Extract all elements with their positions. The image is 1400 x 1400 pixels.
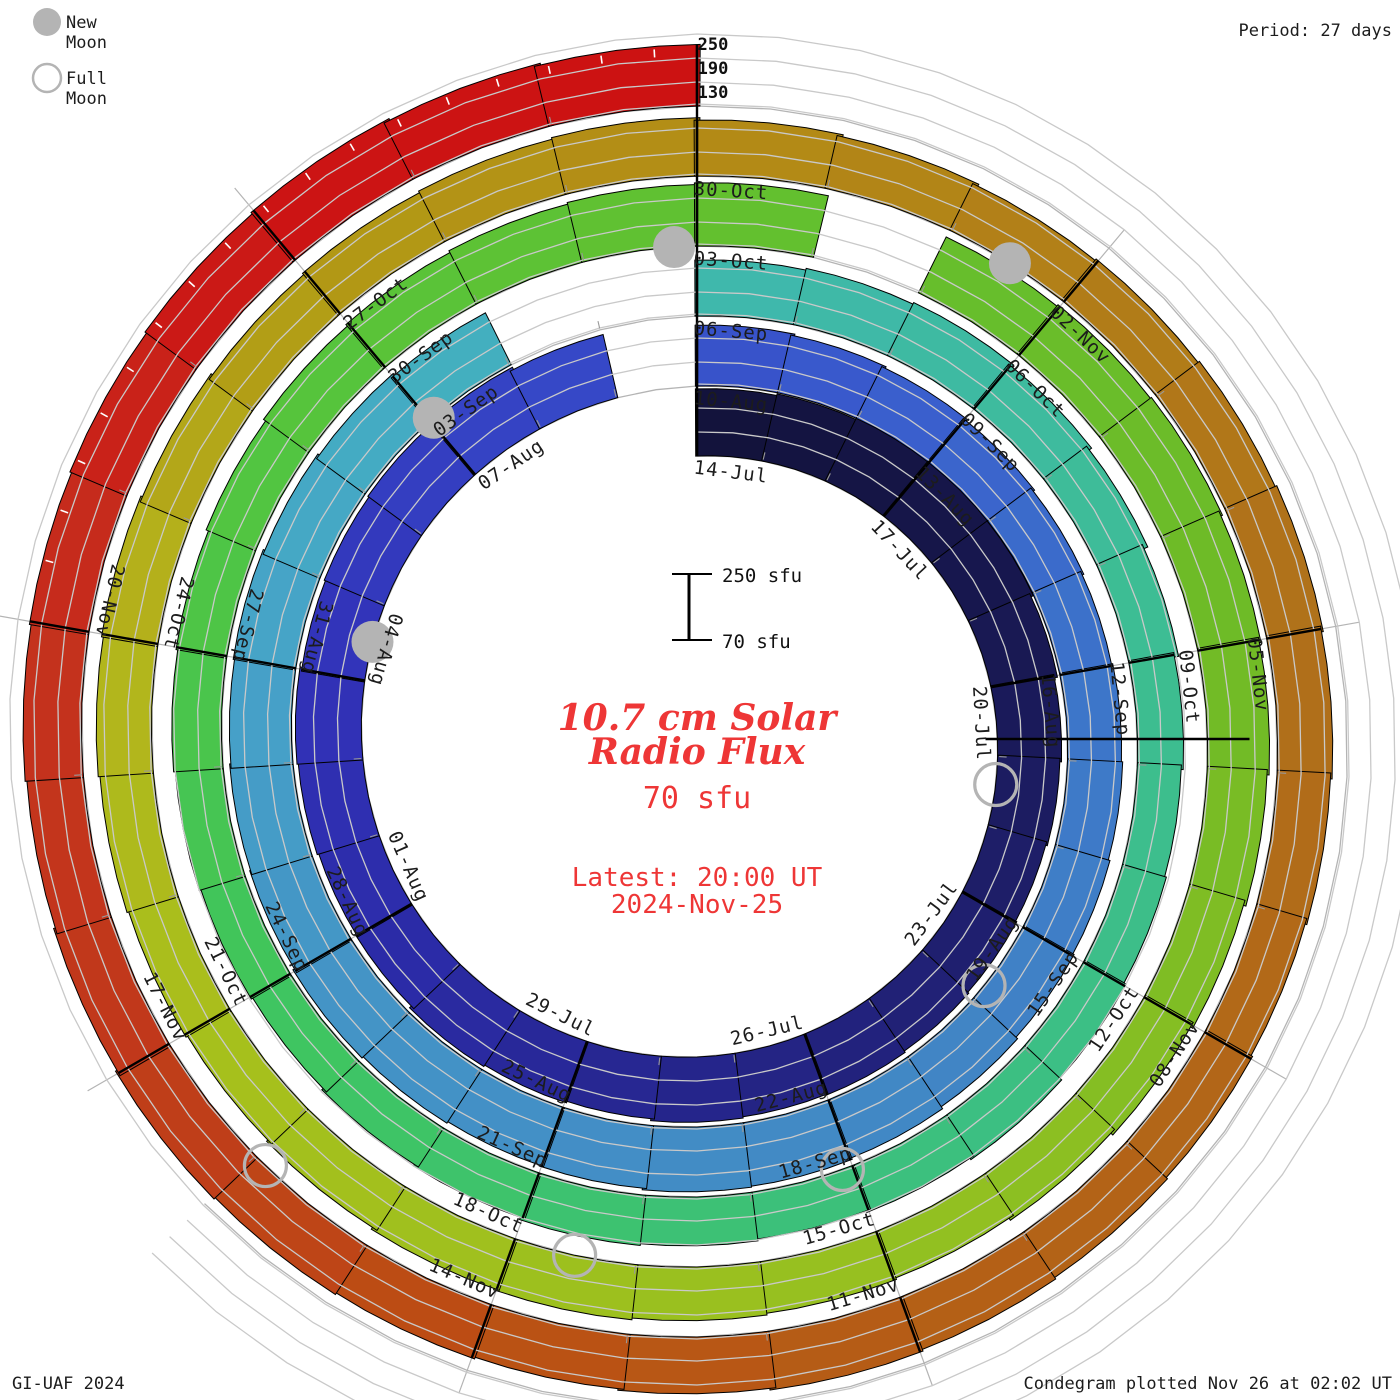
credit-label: GI-UAF 2024: [12, 1374, 125, 1394]
plotted-timestamp: Condegram plotted Nov 26 at 02:02 UT: [1024, 1374, 1392, 1394]
new-moon-icon: [33, 8, 61, 36]
new-moon-legend-label: New Moon: [66, 13, 107, 53]
moon-legend-icons: [0, 0, 260, 110]
scale-bar: 250 sfu 70 sfu: [672, 565, 802, 653]
radial-axis-tick-190: 190: [698, 59, 729, 79]
full-moon-icon: [33, 64, 61, 92]
annotation-layer: 250 190 130 250 sfu 70 sfu 10.7 cm Solar…: [0, 0, 1400, 1400]
scale-bar-bottom-label: 70 sfu: [722, 631, 791, 653]
latest-time-label: Latest: 20:00 UT: [572, 863, 823, 893]
radial-axis-tick-250: 250: [698, 35, 729, 55]
condegram-page: 14-Jul17-Jul20-Jul23-Jul26-Jul29-Jul01-A…: [0, 0, 1400, 1400]
scale-bar-top-label: 250 sfu: [722, 565, 802, 587]
period-label: Period: 27 days: [1238, 21, 1392, 41]
full-moon-legend-label: Full Moon: [66, 69, 107, 109]
latest-date-label: 2024-Nov-25: [611, 890, 783, 920]
chart-title-line2: Radio Flux: [588, 731, 806, 773]
current-flux-value: 70 sfu: [643, 781, 751, 816]
radial-axis-tick-130: 130: [698, 83, 729, 103]
